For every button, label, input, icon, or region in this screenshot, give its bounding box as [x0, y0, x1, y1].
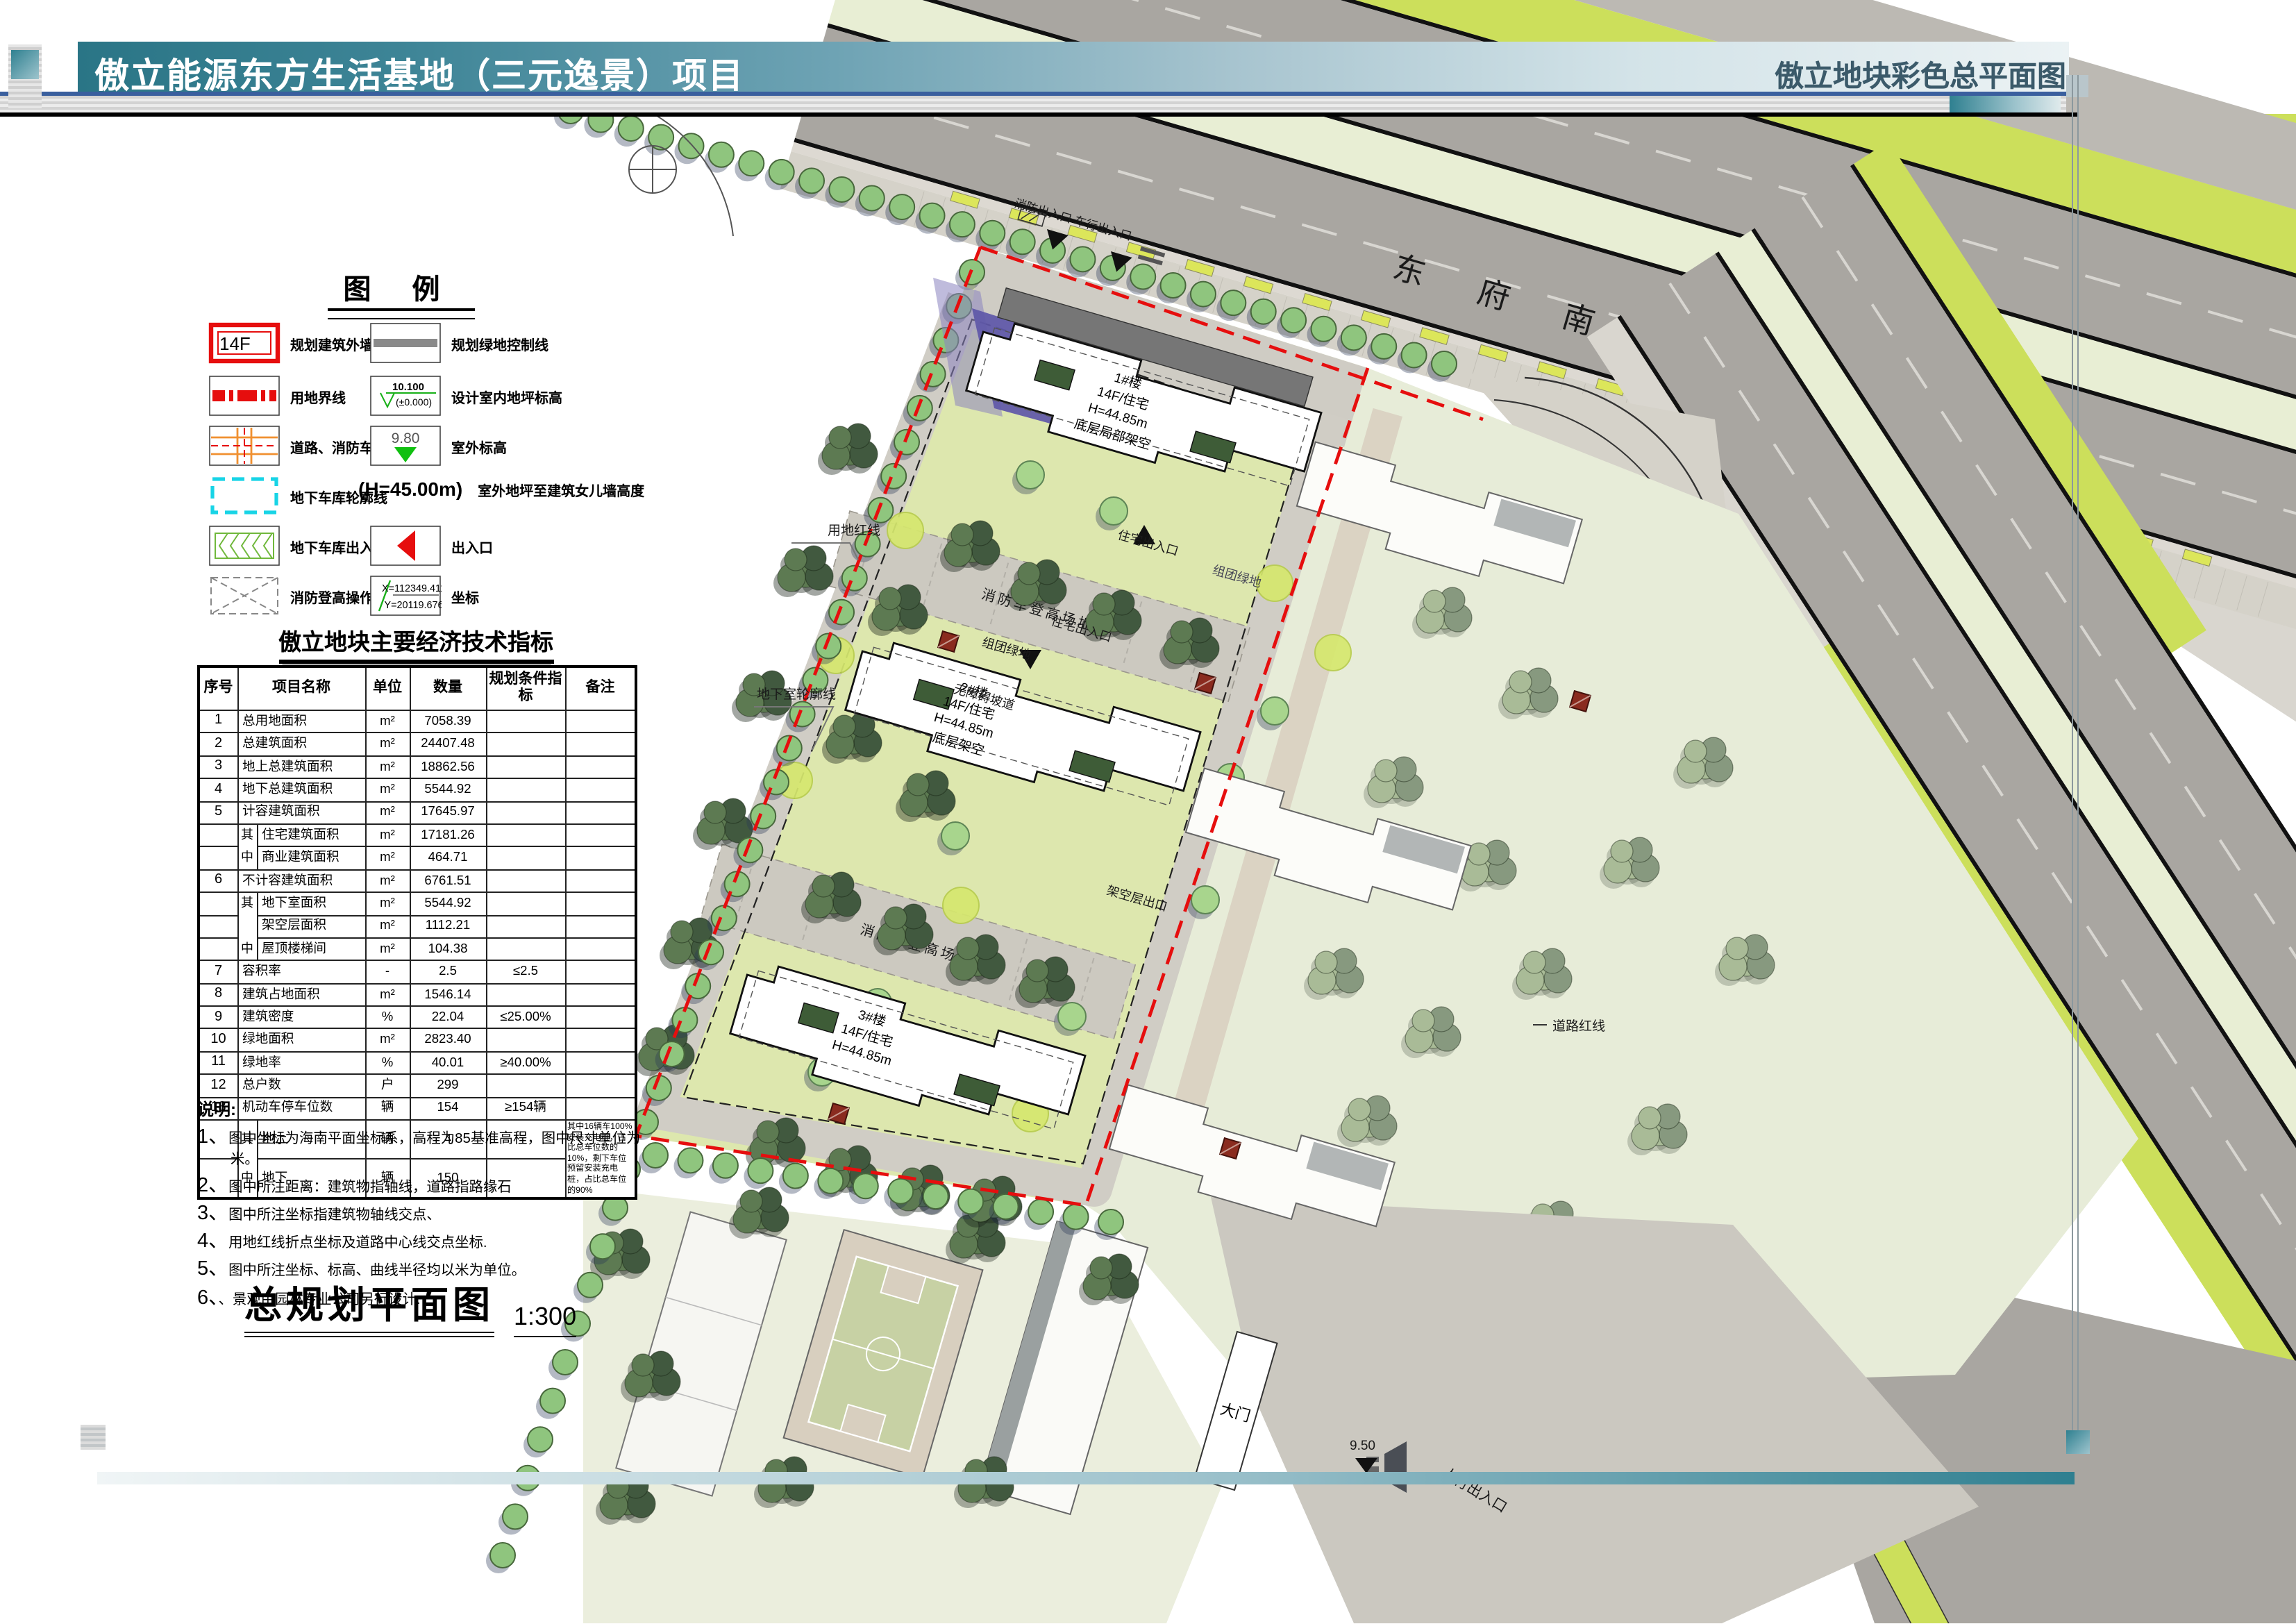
table-row: 其地下室面积m²5544.92 [199, 892, 636, 915]
entrance-icon [369, 525, 442, 567]
notes-title: 说明: [197, 1097, 658, 1121]
svg-text:10.100: 10.100 [392, 381, 424, 393]
table-row: 4地下总建筑面积m²5544.92 [199, 778, 636, 801]
building-outline-icon: 14F [208, 322, 280, 364]
table-row: 2总建筑面积m²24407.48 [199, 733, 636, 756]
note-item: 2、图中所注距离：建筑物指轴线，道路指路缘石 [197, 1171, 658, 1200]
svg-text:道路红线: 道路红线 [1552, 1019, 1605, 1034]
sheet-title: 傲立地块彩色总平面图 [1625, 54, 2066, 96]
table-row: 6不计容建筑面积m²6761.51 [199, 869, 636, 892]
table-row: 9建筑密度%22.04≤25.00% [199, 1006, 636, 1029]
garage-outline-icon [208, 475, 280, 517]
fire-pad-icon [208, 575, 280, 617]
table-row: 11绿地率%40.01≥40.00% [199, 1052, 636, 1075]
drawing-scale: 1:300 [514, 1303, 576, 1337]
note-item: 3、图中所注坐标指建筑物轴线交点、 [197, 1200, 658, 1228]
legend-item-road: 道路、消防车道 [208, 425, 387, 467]
pavilion-feature [1195, 673, 1216, 694]
table-row: 3地上总建筑面积m²18862.56 [199, 756, 636, 779]
table-row: 1总用地面积m²7058.39 [199, 710, 636, 733]
table-row: 7容积率-2.5≤2.5 [199, 961, 636, 984]
table-header-row: 序号 项目名称 单位 数量 规划条件指标 备注 [199, 667, 636, 710]
road-firelane-icon [208, 425, 280, 467]
footer-bar [97, 1472, 2075, 1484]
header-stripe-bar [0, 96, 2066, 112]
table-row: 8建筑占地面积m²1546.14 [199, 983, 636, 1006]
legend-item-coordinate: X=112349.411 Y=20119.676 坐标 [369, 575, 479, 617]
header-rule-black [0, 112, 2079, 116]
table-row: 其住宅建筑面积m²17181.26 [199, 824, 636, 847]
legend-item-garage-ramp: 地下车库出入口 [208, 525, 387, 567]
legend-title-underline [328, 308, 475, 319]
pavilion-feature [1220, 1138, 1241, 1159]
legend-item-parapet-height: (H=45.00m) 室外地坪至建筑女儿墙高度 [358, 478, 644, 500]
garage-ramp-icon [208, 525, 280, 567]
drawing-title: 总规划平面图 1:300 [244, 1275, 576, 1337]
svg-text:Y=20119.676: Y=20119.676 [385, 600, 442, 611]
legend-title: 图 例 [289, 267, 511, 307]
table-row: 中屋顶楼梯间m²104.38 [199, 938, 636, 961]
coordinate-icon: X=112349.411 Y=20119.676 [369, 575, 442, 617]
svg-text:9.80: 9.80 [392, 430, 420, 446]
table-row: 10绿地面积m²2823.40 [199, 1029, 636, 1052]
southwest-neighborhood [583, 1187, 1222, 1623]
table-row: 中商业建筑面积m²464.71 [199, 847, 636, 870]
legend-item-entrance: 出入口 [369, 525, 493, 567]
green-control-icon [369, 322, 442, 364]
legend-item-boundary: 用地界线 [208, 375, 346, 417]
table-row: 12总户数户299 [199, 1075, 636, 1098]
svg-text:用地红线: 用地红线 [828, 523, 880, 538]
corner-ornament-bottomleft [81, 1425, 106, 1450]
table-title: 傲立地块主要经济技术指标 [197, 623, 635, 664]
drawing-sheet: 东 府 南 路 [0, 0, 2296, 1623]
legend-item-green-control: 规划绿地控制线 [369, 322, 548, 364]
note-item: 1、图中坐标为海南平面坐标系，高程为85基准高程，图中尺寸单位为米。 [197, 1123, 658, 1171]
legend-item-exterior-level: 9.80 室外标高 [369, 425, 507, 467]
land-boundary-icon [208, 375, 280, 417]
legend-item-interior-level: 10.100 (±0.000) 设计室内地坪标高 [369, 375, 562, 417]
exterior-level-icon: 9.80 [369, 425, 442, 467]
svg-text:地下室轮廓线: 地下室轮廓线 [757, 687, 836, 702]
svg-text:14F: 14F [219, 333, 251, 354]
pavilion-feature [1570, 691, 1591, 712]
corner-teal-bottomright [2066, 1430, 2090, 1454]
header-teal-segment [1950, 96, 2061, 112]
table-row: 架空层面积m²1112.21 [199, 915, 636, 938]
interior-level-icon: 10.100 (±0.000) [369, 375, 442, 417]
corner-teal-topleft [11, 50, 39, 79]
pavilion-feature [828, 1103, 849, 1124]
sheet-border-right [2072, 75, 2079, 1453]
table-row: 5计容建筑面积m²17645.97 [199, 801, 636, 824]
svg-text:(±0.000): (±0.000) [396, 396, 432, 408]
svg-text:X=112349.411: X=112349.411 [382, 583, 442, 594]
drawing-title-text: 总规划平面图 [244, 1275, 494, 1337]
svg-text:9.50: 9.50 [1350, 1439, 1375, 1453]
note-item: 4、用地红线折点坐标及道路中心线交点坐标. [197, 1228, 658, 1256]
pavilion-feature [938, 631, 959, 652]
